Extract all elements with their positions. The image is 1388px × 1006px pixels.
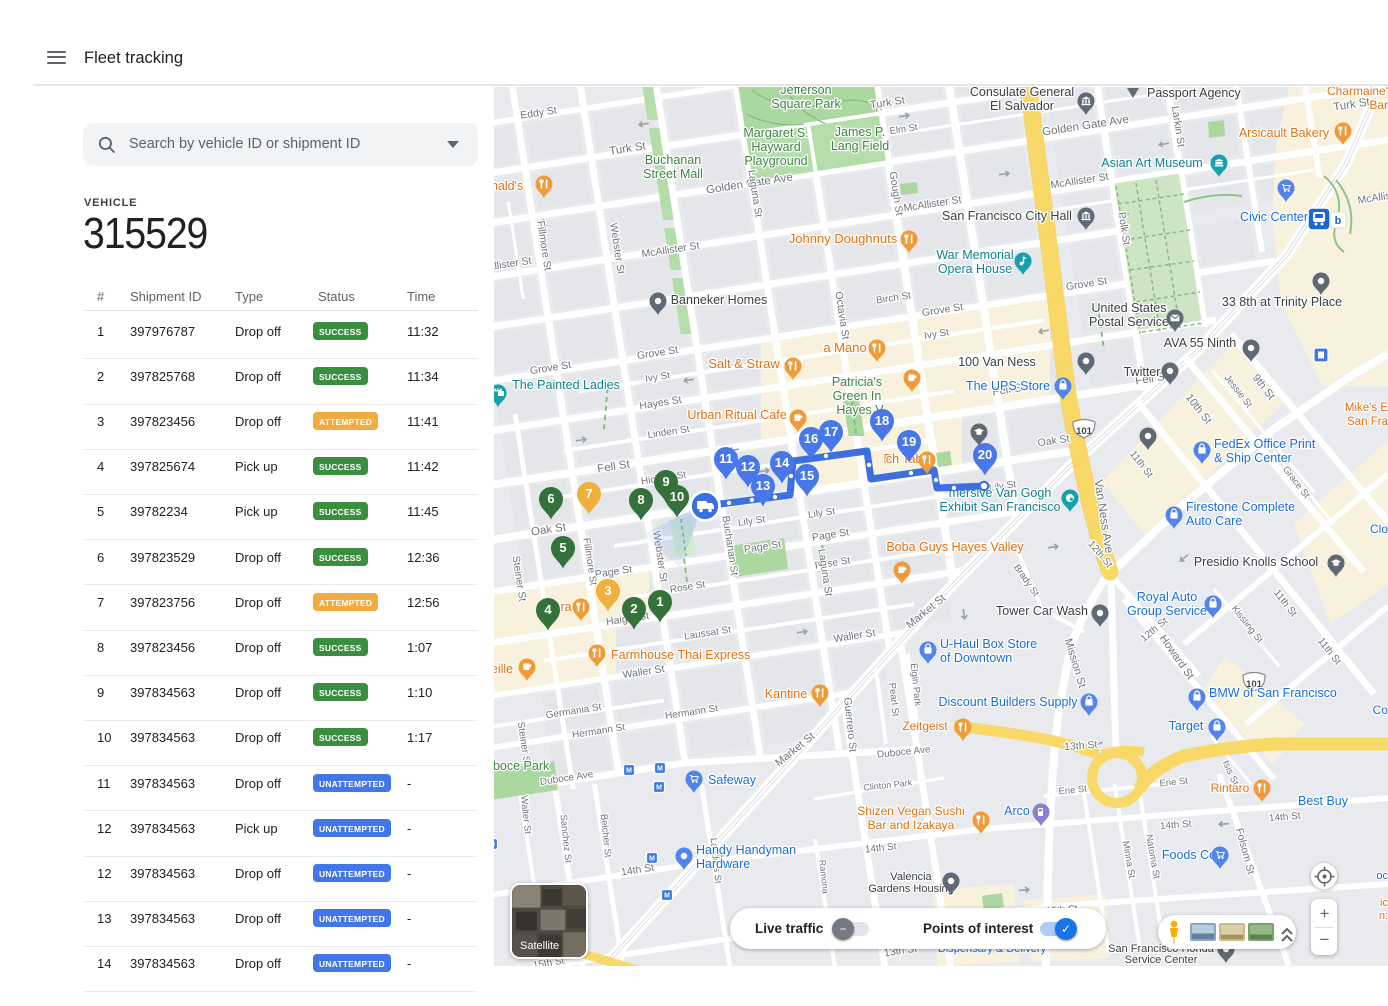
svg-text:14: 14: [775, 455, 790, 470]
svg-text:Johnny Doughnuts: Johnny Doughnuts: [789, 231, 898, 246]
svg-text:Jefferson: Jefferson: [780, 87, 831, 97]
svg-text:20: 20: [978, 447, 992, 462]
svg-text:Postal Service: Postal Service: [1089, 315, 1169, 329]
svg-text:7: 7: [585, 486, 592, 501]
svg-text:Safeway: Safeway: [708, 773, 757, 787]
svg-text:Patricia's: Patricia's: [832, 375, 882, 389]
svg-text:5: 5: [559, 540, 566, 555]
svg-text:BMW of San Francisco: BMW of San Francisco: [1209, 686, 1337, 700]
svg-text:Arsicault Bakery: Arsicault Bakery: [1239, 126, 1330, 140]
svg-text:Discount Builders Supply: Discount Builders Supply: [939, 695, 1079, 709]
svg-text:Target: Target: [1169, 719, 1204, 733]
svg-text:Buchanan: Buchanan: [645, 153, 701, 167]
svg-text:8: 8: [637, 492, 644, 507]
svg-text:Valencia: Valencia: [890, 871, 932, 883]
svg-text:100 Van Ness: 100 Van Ness: [958, 355, 1036, 369]
svg-text:Royal Auto: Royal Auto: [1137, 590, 1198, 604]
svg-text:& Ship Center: & Ship Center: [1214, 451, 1292, 465]
svg-text:Twitter: Twitter: [1124, 365, 1161, 379]
svg-text:a Mano: a Mano: [823, 340, 866, 355]
svg-text:Passport Agency: Passport Agency: [1147, 87, 1242, 100]
svg-text:onald's: onald's: [494, 179, 523, 193]
svg-text:Shizen Vegan Sushi: Shizen Vegan Sushi: [857, 804, 964, 818]
svg-text:Gardens Housing: Gardens Housing: [868, 883, 954, 895]
svg-text:Hayward: Hayward: [751, 140, 800, 154]
svg-text:15: 15: [800, 468, 814, 483]
svg-text:Handy Handyman: Handy Handyman: [696, 843, 796, 857]
svg-text:Asian Art Museum: Asian Art Museum: [1101, 156, 1202, 170]
svg-text:17: 17: [824, 424, 838, 439]
svg-text:Exhibit San Francisco: Exhibit San Francisco: [940, 500, 1061, 514]
svg-text:Opera House: Opera House: [938, 262, 1012, 276]
svg-text:U-Haul Box Store: U-Haul Box Store: [940, 637, 1037, 651]
svg-text:Presidio Knolls School: Presidio Knolls School: [1194, 555, 1318, 569]
svg-text:Lang Field: Lang Field: [831, 139, 889, 153]
svg-text:2: 2: [630, 601, 637, 616]
svg-text:M: M: [626, 767, 632, 774]
svg-text:9: 9: [662, 474, 669, 489]
svg-text:James P.: James P.: [835, 125, 886, 139]
svg-text:The UPS Store: The UPS Store: [966, 379, 1050, 393]
svg-text:101: 101: [1076, 426, 1093, 437]
svg-text:Farmhouse Thai Express: Farmhouse Thai Express: [611, 648, 750, 662]
svg-text:16: 16: [804, 431, 818, 446]
svg-text:Service Center: Service Center: [1125, 954, 1198, 966]
svg-text:Banneker Homes: Banneker Homes: [671, 293, 768, 307]
svg-text:M: M: [656, 784, 662, 791]
svg-text:El Salvador: El Salvador: [990, 99, 1054, 113]
svg-text:18: 18: [875, 413, 889, 428]
svg-text:eille: eille: [494, 662, 513, 676]
svg-text:11: 11: [719, 451, 733, 466]
svg-text:Consulate General: Consulate General: [970, 87, 1074, 99]
svg-text:33 8th at Trinity Place: 33 8th at Trinity Place: [1222, 295, 1342, 309]
svg-text:M: M: [657, 765, 663, 772]
svg-text:12: 12: [741, 459, 755, 474]
svg-text:Charmaine': Charmaine': [1327, 87, 1388, 98]
svg-text:Hardware: Hardware: [696, 857, 750, 871]
svg-text:Kantine: Kantine: [765, 687, 807, 701]
svg-text:Green In: Green In: [833, 389, 882, 403]
svg-text:The Painted Ladies: The Painted Ladies: [512, 378, 620, 392]
svg-text:uboce Park: uboce Park: [494, 759, 550, 773]
svg-text:M: M: [494, 841, 495, 848]
svg-text:Auto Care: Auto Care: [1186, 514, 1242, 528]
svg-text:ra: ra: [560, 600, 571, 614]
svg-text:Bar: Bar: [1369, 98, 1388, 112]
svg-text:n:: n:: [1379, 910, 1388, 922]
svg-text:19: 19: [902, 434, 916, 449]
svg-text:Group Service: Group Service: [1127, 604, 1207, 618]
svg-text:Mike's E: Mike's E: [1345, 402, 1388, 414]
svg-text:Square Park: Square Park: [771, 97, 841, 111]
svg-text:Margaret S.: Margaret S.: [743, 126, 808, 140]
svg-text:Salt & Straw: Salt & Straw: [708, 356, 780, 371]
svg-text:M: M: [664, 892, 670, 899]
svg-text:ic: ic: [1380, 897, 1388, 909]
svg-text:of Downtown: of Downtown: [940, 651, 1012, 665]
svg-text:Best Buy: Best Buy: [1298, 794, 1349, 808]
svg-text:13: 13: [756, 478, 770, 493]
svg-text:Co: Co: [1373, 703, 1388, 717]
svg-text:Rintaro: Rintaro: [1211, 781, 1250, 795]
svg-text:b: b: [1335, 215, 1342, 227]
svg-text:Foods Co: Foods Co: [1162, 848, 1216, 862]
svg-text:oc: oc: [1376, 870, 1388, 882]
svg-text:FedEx Office Print: FedEx Office Print: [1214, 437, 1316, 451]
svg-text:Zeitgeist: Zeitgeist: [902, 719, 948, 733]
svg-text:Street Mall: Street Mall: [643, 167, 703, 181]
svg-text:Urban Ritual Cafe: Urban Ritual Cafe: [687, 408, 786, 422]
svg-text:4: 4: [544, 602, 552, 617]
svg-text:AVA 55 Ninth: AVA 55 Ninth: [1164, 336, 1237, 350]
svg-text:Civic Center: Civic Center: [1240, 210, 1308, 224]
svg-text:San Fra: San Fra: [1347, 416, 1388, 428]
svg-text:War Memorial: War Memorial: [936, 248, 1013, 262]
svg-text:Playground: Playground: [744, 154, 807, 168]
svg-text:San Francisco City Hall: San Francisco City Hall: [942, 209, 1072, 223]
svg-text:Clo: Clo: [1370, 522, 1388, 536]
svg-text:Firestone Complete: Firestone Complete: [1186, 500, 1295, 514]
svg-text:Bar and Izakaya: Bar and Izakaya: [868, 818, 955, 832]
svg-text:Tower Car Wash: Tower Car Wash: [996, 604, 1088, 618]
svg-text:13th St: 13th St: [1064, 739, 1098, 753]
svg-text:10: 10: [670, 489, 684, 504]
svg-text:3: 3: [604, 583, 611, 598]
svg-text:6: 6: [547, 491, 554, 506]
svg-text:1: 1: [656, 594, 663, 609]
svg-text:Arco: Arco: [1004, 804, 1030, 818]
svg-text:United States: United States: [1091, 301, 1166, 315]
svg-text:Boba Guys Hayes Valley: Boba Guys Hayes Valley: [886, 540, 1024, 554]
